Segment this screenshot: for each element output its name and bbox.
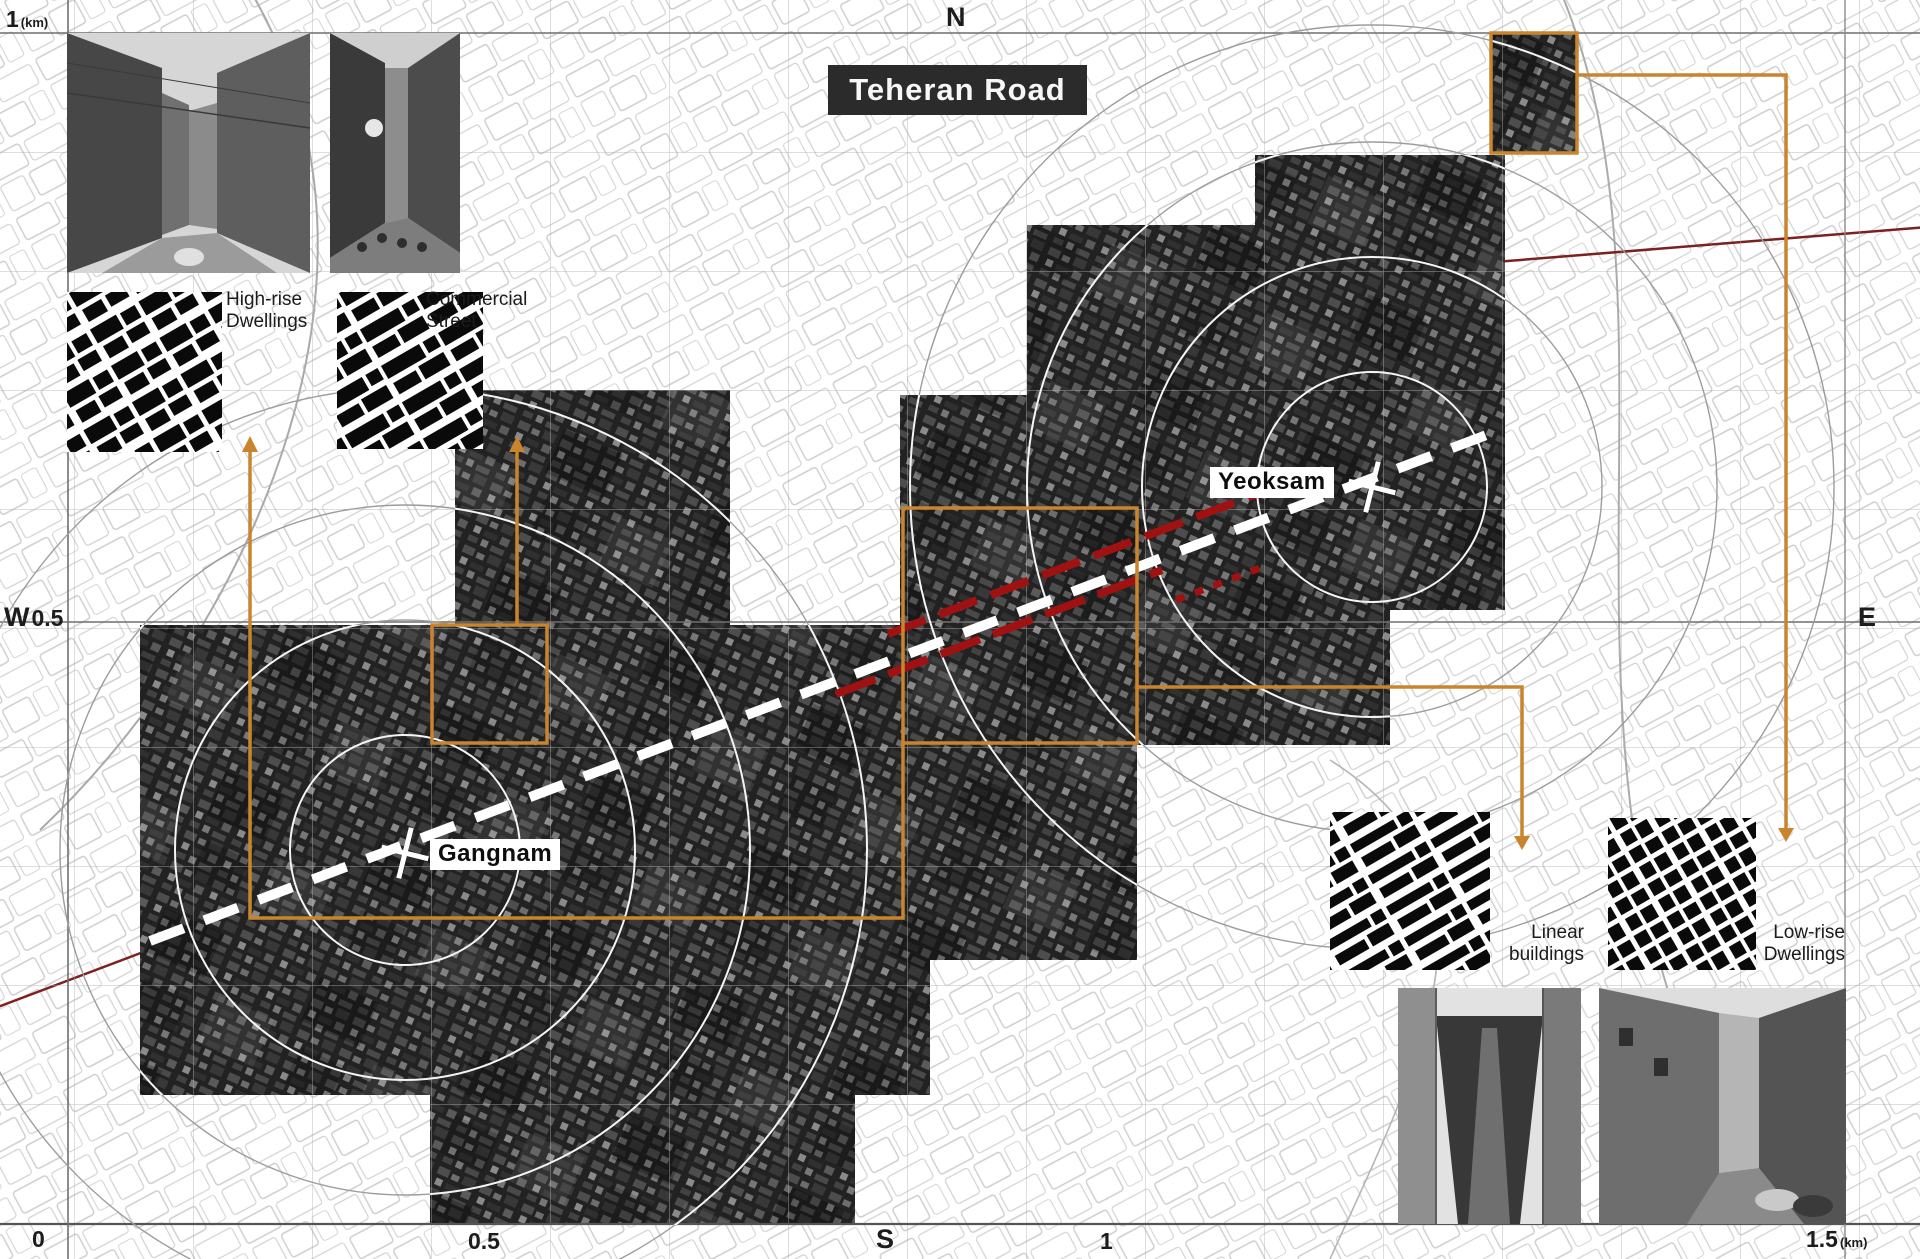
station-label-yeoksam: Yeoksam (1210, 467, 1334, 498)
photo-highrise-street (67, 33, 310, 273)
compass-north: N (946, 2, 966, 33)
label-line: High-rise (226, 289, 307, 311)
scale-bottom-right: 1.5 (km) (1806, 1226, 1867, 1253)
figure-ground-highrise (67, 292, 222, 452)
label-line: Dwellings (226, 311, 307, 333)
label-line: Street (426, 311, 527, 333)
scale-top-left: 1 (km) (6, 6, 48, 33)
scale-left: W 0.5 (4, 602, 63, 633)
compass-south: S (876, 1224, 894, 1255)
photo-linear-avenue (1398, 988, 1581, 1224)
label-line: Linear (1470, 922, 1584, 944)
label-highrise-dwellings: High-rise Dwellings (226, 289, 307, 334)
photo-lowrise-alley (1599, 988, 1846, 1224)
label-line: Commercial (426, 289, 527, 311)
scale-bottom-right-unit: (km) (1840, 1235, 1867, 1250)
scale-top-left-unit: (km) (21, 15, 48, 30)
scale-top-left-value: 1 (6, 6, 19, 33)
label-line: Low-rise (1733, 922, 1845, 944)
map-title: Teheran Road (828, 65, 1087, 115)
scale-bottom-half: 0.5 (468, 1228, 500, 1255)
compass-east: E (1858, 602, 1876, 633)
figure-ground-linear (1330, 812, 1490, 970)
station-label-gangnam: Gangnam (430, 839, 560, 870)
scale-bottom-zero: 0 (32, 1226, 45, 1253)
compass-west: W (4, 602, 29, 633)
photo-commercial-street (330, 33, 460, 273)
scale-bottom-right-value: 1.5 (1806, 1226, 1838, 1253)
label-linear-buildings: Linear buildings (1470, 922, 1584, 967)
scale-left-value: 0.5 (31, 605, 63, 632)
label-lowrise-dwellings: Low-rise Dwellings (1733, 922, 1845, 967)
urban-analysis-figure: Teheran Road N S E 1 (km) W 0.5 0 0.5 1 … (0, 0, 1920, 1259)
label-line: buildings (1470, 944, 1584, 966)
label-line: Dwellings (1733, 944, 1845, 966)
scale-bottom-one: 1 (1100, 1228, 1113, 1255)
label-commercial-street: Commercial Street (426, 289, 527, 334)
